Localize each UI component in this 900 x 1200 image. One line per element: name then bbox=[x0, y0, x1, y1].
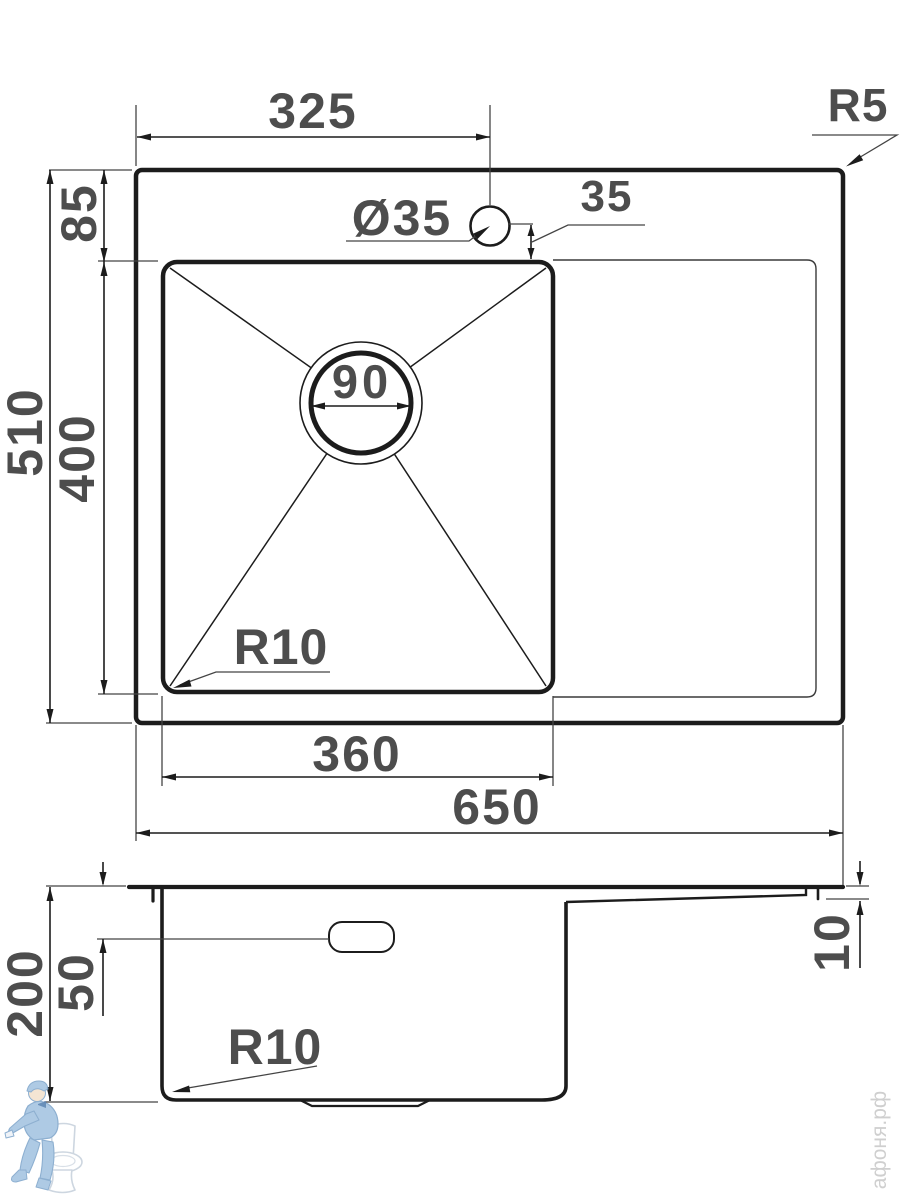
svg-text:афоня.рф: афоня.рф bbox=[868, 1091, 891, 1189]
svg-text:35: 35 bbox=[581, 172, 634, 221]
svg-text:510: 510 bbox=[0, 387, 53, 476]
svg-text:Ø35: Ø35 bbox=[352, 190, 453, 246]
svg-text:10: 10 bbox=[804, 912, 860, 972]
svg-text:200: 200 bbox=[0, 948, 53, 1037]
svg-text:R5: R5 bbox=[828, 79, 889, 131]
svg-text:360: 360 bbox=[312, 726, 401, 782]
svg-text:R10: R10 bbox=[234, 619, 329, 675]
svg-text:50: 50 bbox=[48, 952, 104, 1012]
svg-text:325: 325 bbox=[268, 83, 357, 139]
svg-text:85: 85 bbox=[51, 183, 107, 243]
svg-text:R10: R10 bbox=[228, 1019, 323, 1075]
svg-text:650: 650 bbox=[452, 779, 541, 835]
svg-text:90: 90 bbox=[332, 355, 392, 408]
svg-text:400: 400 bbox=[49, 413, 105, 502]
